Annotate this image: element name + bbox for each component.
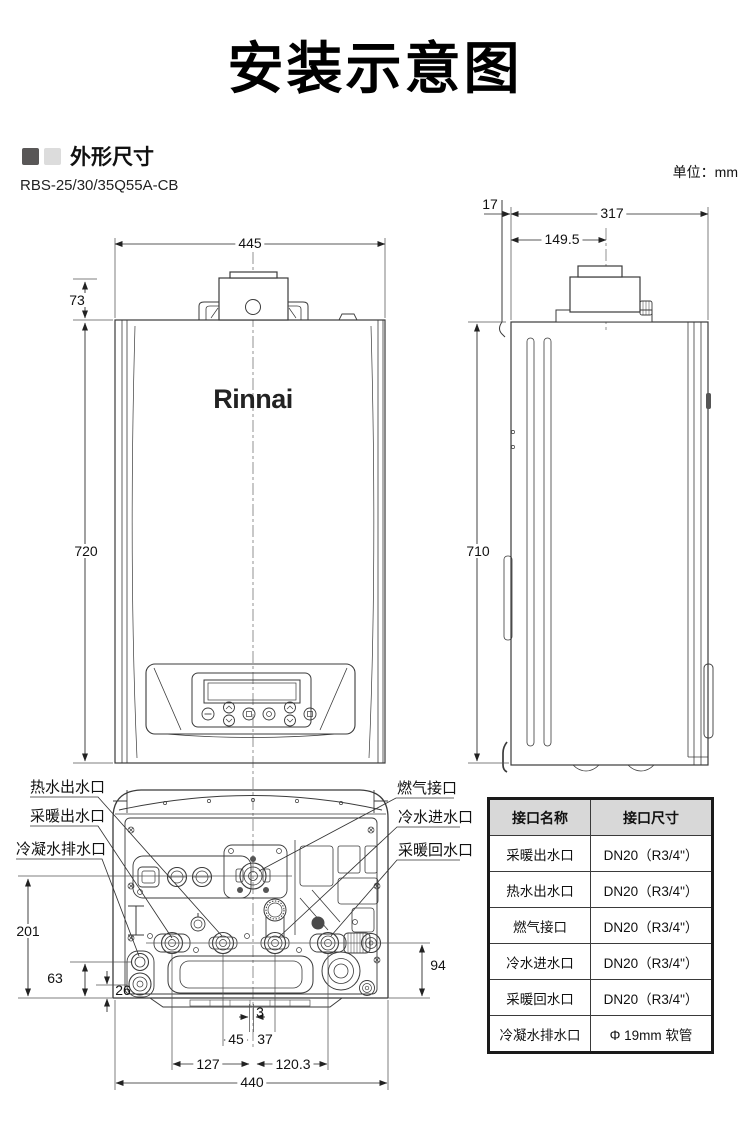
- table-row: 热水出水口 DN20（R3/4"）: [489, 872, 713, 908]
- label-cold-water-inlet: 冷水进水口: [398, 810, 473, 826]
- port-table-header-row: 接口名称 接口尺寸: [489, 799, 713, 836]
- port-size-cell: DN20（R3/4"）: [591, 980, 713, 1016]
- port-table: 接口名称 接口尺寸 采暖出水口 DN20（R3/4"） 热水出水口 DN20（R…: [487, 797, 714, 1054]
- brand-logo: Rinnai: [213, 384, 293, 415]
- installation-diagram-page: 安装示意图 外形尺寸 RBS-25/30/35Q55A-CB 单位：mm: [0, 0, 750, 1137]
- label-condensate-drain-outlet: 冷凝水排水口: [16, 842, 106, 858]
- dim-bottom-drain-upper: 63: [47, 971, 63, 985]
- screw-icons: [128, 827, 380, 963]
- dim-front-flue-height: 73: [66, 293, 88, 307]
- dim-bottom-center-to-return: 120.3: [272, 1057, 313, 1071]
- dim-bottom-ports-height: 94: [430, 958, 446, 972]
- label-hot-water-outlet: 热水出水口: [30, 780, 105, 796]
- dim-bottom-heating-to-center: 127: [193, 1057, 222, 1071]
- port-name-cell: 采暖回水口: [489, 980, 591, 1016]
- label-heating-water-outlet: 采暖出水口: [30, 809, 105, 825]
- port-name-cell: 燃气接口: [489, 908, 591, 944]
- port-name-cell: 采暖出水口: [489, 836, 591, 872]
- front-view-drawing: [115, 272, 385, 763]
- table-row: 冷凝水排水口 Φ 19mm 软管: [489, 1016, 713, 1053]
- dim-bottom-width: 440: [237, 1075, 266, 1089]
- port-size-cell: DN20（R3/4"）: [591, 908, 713, 944]
- port-name-cell: 冷凝水排水口: [489, 1016, 591, 1053]
- dim-side-height: 710: [463, 544, 492, 558]
- dim-front-width: 445: [235, 236, 264, 250]
- dim-bottom-hot-to-center: 45: [225, 1032, 247, 1046]
- label-heating-water-return: 采暖回水口: [398, 843, 473, 859]
- port-size-cell: DN20（R3/4"）: [591, 944, 713, 980]
- table-row: 燃气接口 DN20（R3/4"）: [489, 908, 713, 944]
- port-size-cell: Φ 19mm 软管: [591, 1016, 713, 1053]
- port-size-cell: DN20（R3/4"）: [591, 836, 713, 872]
- side-view-drawing: [500, 200, 714, 772]
- dim-side-flue-center: 149.5: [541, 232, 582, 246]
- dim-side-wall-gap: 17: [482, 197, 498, 211]
- port-name-header: 接口名称: [489, 799, 591, 836]
- port-name-cell: 冷水进水口: [489, 944, 591, 980]
- dim-bottom-gas-height: 201: [13, 924, 42, 938]
- table-row: 采暖回水口 DN20（R3/4"）: [489, 980, 713, 1016]
- port-size-header: 接口尺寸: [591, 799, 713, 836]
- dim-bottom-center-offset: 3: [256, 1005, 264, 1019]
- dim-front-height: 720: [71, 544, 100, 558]
- table-row: 采暖出水口 DN20（R3/4"）: [489, 836, 713, 872]
- dim-side-depth: 317: [597, 206, 626, 220]
- dim-bottom-drain-lower: 26: [115, 983, 131, 997]
- label-gas-connection: 燃气接口: [397, 781, 457, 797]
- dim-bottom-center-to-cold: 37: [254, 1032, 276, 1046]
- port-name-cell: 热水出水口: [489, 872, 591, 908]
- port-size-cell: DN20（R3/4"）: [591, 872, 713, 908]
- table-row: 冷水进水口 DN20（R3/4"）: [489, 944, 713, 980]
